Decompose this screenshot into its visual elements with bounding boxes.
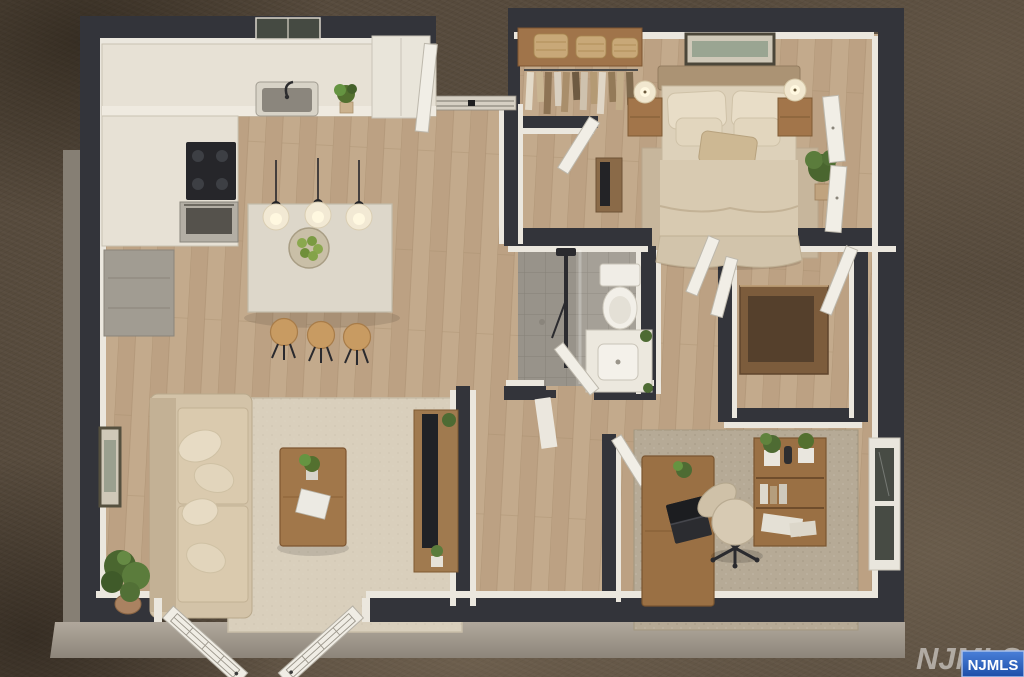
floor-plan-scene: NJMLS NJMLS <box>0 0 1024 677</box>
sink <box>256 82 318 116</box>
tv <box>422 414 438 548</box>
toilet <box>600 264 640 329</box>
tv-console <box>414 410 458 572</box>
bedroom-tv-stand <box>596 158 622 212</box>
cooktop-and-oven <box>180 142 238 242</box>
watermark: NJMLS NJMLS <box>916 641 1024 677</box>
sofa <box>150 394 252 618</box>
console-plant <box>442 413 456 427</box>
njmls-badge: NJMLS <box>962 651 1024 677</box>
closet-baskets <box>534 34 638 58</box>
bedroom-wall-art <box>686 34 774 64</box>
nightstand-right <box>778 98 812 136</box>
entry-threshold <box>428 96 516 110</box>
njmls-badge-text: NJMLS <box>968 657 1019 674</box>
office-window <box>869 438 900 570</box>
steel-cabinet <box>104 250 174 336</box>
floor-plan-render: NJMLS NJMLS <box>0 0 1024 677</box>
living-wall-art <box>100 428 120 506</box>
walk-in-closet-wardrobe <box>740 286 828 374</box>
bed <box>656 66 802 270</box>
nightstand-left <box>628 98 662 136</box>
bookshelf <box>754 433 826 546</box>
fruit-bowl <box>289 228 329 268</box>
vanity-sink <box>586 330 653 393</box>
coffee-table <box>277 448 349 556</box>
desk <box>642 456 714 606</box>
